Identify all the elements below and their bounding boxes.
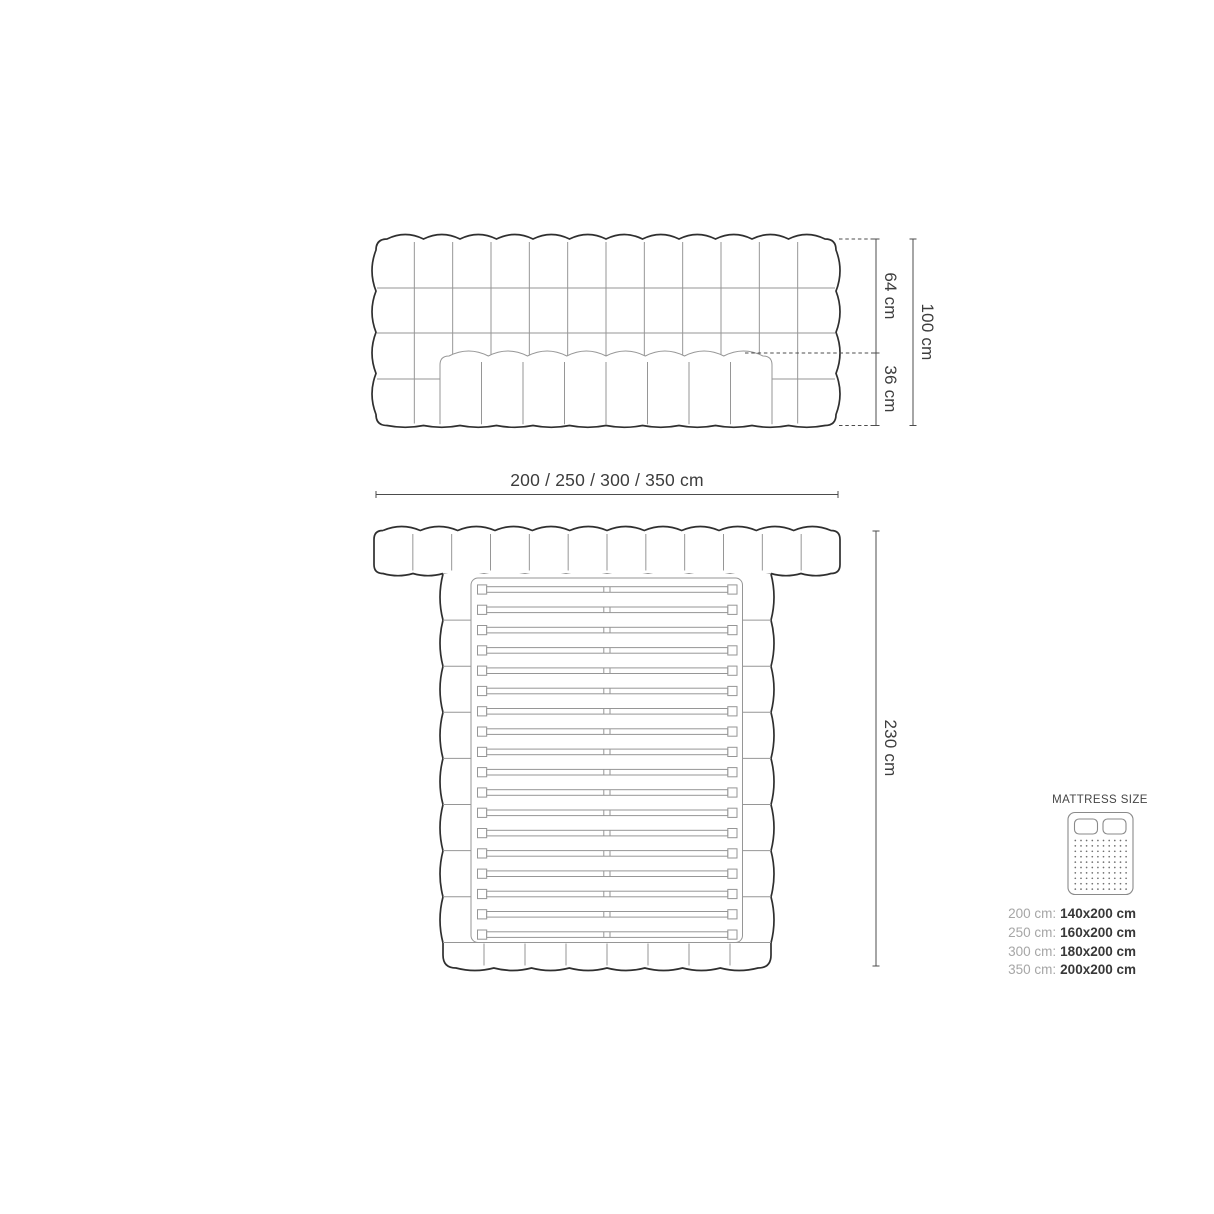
slat — [478, 626, 738, 635]
slat-left-cap — [478, 686, 487, 695]
mattress-dot — [1108, 877, 1110, 879]
mattress-size-row: 250 cm:160x200 cm — [995, 924, 1136, 943]
mattress-dot — [1103, 856, 1105, 858]
mattress-dot — [1080, 888, 1082, 890]
slat-bar — [487, 830, 728, 836]
slat-left-cap — [478, 808, 487, 817]
mattress-dot — [1091, 888, 1093, 890]
mattress-dot — [1120, 840, 1122, 842]
mattress-dot — [1103, 867, 1105, 869]
slat-right-cap — [728, 686, 737, 695]
mattress-dot — [1080, 883, 1082, 885]
slat — [478, 707, 738, 716]
mattress-dot — [1125, 888, 1127, 890]
slat-right-cap — [728, 747, 737, 756]
mattress-size-row: 200 cm:140x200 cm — [995, 905, 1136, 924]
size-option-label: 300 cm: — [1008, 944, 1056, 959]
mattress-dot — [1097, 888, 1099, 890]
mattress-dot — [1080, 877, 1082, 879]
mattress-dot — [1074, 861, 1076, 863]
mattress-dot — [1114, 845, 1116, 847]
mattress-dot — [1120, 877, 1122, 879]
mattress-dot — [1114, 888, 1116, 890]
mattress-dot — [1097, 867, 1099, 869]
mattress-dot — [1125, 850, 1127, 852]
mattress-dot — [1091, 877, 1093, 879]
slat-left-cap — [478, 626, 487, 635]
slat-right-cap — [728, 605, 737, 614]
mattress-dot — [1097, 877, 1099, 879]
slat — [478, 808, 738, 817]
mattress-dot — [1108, 840, 1110, 842]
mattress-dot — [1108, 845, 1110, 847]
mattress-dot — [1103, 883, 1105, 885]
slat-right-cap — [728, 869, 737, 878]
mattress-dot — [1120, 845, 1122, 847]
slat-left-cap — [478, 849, 487, 858]
slat — [478, 788, 738, 797]
slat — [478, 666, 738, 675]
slat-left-cap — [478, 727, 487, 736]
mattress-dot — [1108, 867, 1110, 869]
mattress-dot — [1086, 867, 1088, 869]
mattress-dot — [1091, 845, 1093, 847]
slat — [478, 849, 738, 858]
mattress-dot — [1103, 872, 1105, 874]
dim-label-100: 100 cm — [918, 304, 937, 361]
mattress-dot — [1080, 856, 1082, 858]
slat-bar — [487, 891, 728, 897]
slat-bar — [487, 871, 728, 877]
bed-dimension-diagram: 64 cm 36 cm 100 cm 200 / 250 / 300 / 350… — [0, 0, 1214, 1214]
dim-label-64: 64 cm — [881, 272, 900, 319]
slat-right-cap — [728, 727, 737, 736]
slat-bar — [487, 688, 728, 694]
slat-right-cap — [728, 666, 737, 675]
dim-label-230: 230 cm — [881, 720, 900, 777]
mattress-dot — [1125, 845, 1127, 847]
mattress-dot — [1086, 872, 1088, 874]
mattress-dot — [1103, 888, 1105, 890]
slat-right-cap — [728, 788, 737, 797]
slat-bar — [487, 627, 728, 633]
slat — [478, 768, 738, 777]
mattress-dot — [1125, 861, 1127, 863]
dim-label-36: 36 cm — [881, 365, 900, 412]
size-option-label: 250 cm: — [1008, 925, 1056, 940]
slat-left-cap — [478, 788, 487, 797]
dim-label-width: 200 / 250 / 300 / 350 cm — [510, 470, 704, 490]
dimension-line-100 — [910, 239, 917, 426]
slat-bar — [487, 709, 728, 715]
mattress-dot — [1086, 877, 1088, 879]
dimension-line-64-36 — [873, 239, 880, 426]
slat-left-cap — [478, 585, 487, 594]
pillow-left — [1075, 819, 1098, 834]
slat-left-cap — [478, 869, 487, 878]
dimension-line-230 — [873, 531, 880, 966]
mattress-dot — [1125, 883, 1127, 885]
mattress-dot — [1114, 850, 1116, 852]
mattress-dot — [1091, 850, 1093, 852]
slat-right-cap — [728, 707, 737, 716]
mattress-dot — [1091, 861, 1093, 863]
mattress-dot — [1074, 840, 1076, 842]
mattress-dot — [1074, 872, 1076, 874]
slat-right-cap — [728, 626, 737, 635]
mattress-dot — [1114, 840, 1116, 842]
mattress-dot — [1103, 877, 1105, 879]
slat-left-cap — [478, 666, 487, 675]
mattress-dot — [1074, 888, 1076, 890]
slat — [478, 869, 738, 878]
mattress-dot — [1080, 872, 1082, 874]
slat-right-cap — [728, 889, 737, 898]
slat-right-cap — [728, 646, 737, 655]
mattress-dot — [1120, 872, 1122, 874]
slat-left-cap — [478, 605, 487, 614]
mattress-dot — [1108, 861, 1110, 863]
mattress-dot — [1120, 861, 1122, 863]
mattress-dot — [1080, 845, 1082, 847]
dimension-line-width — [376, 491, 838, 498]
mattress-dot — [1080, 850, 1082, 852]
slat — [478, 747, 738, 756]
mattress-dot — [1086, 840, 1088, 842]
mattress-dot — [1114, 856, 1116, 858]
mattress-dot — [1091, 872, 1093, 874]
mattress-dot — [1103, 861, 1105, 863]
mattress-dot — [1074, 877, 1076, 879]
mattress-dot — [1125, 877, 1127, 879]
slat-right-cap — [728, 768, 737, 777]
size-option-label: 350 cm: — [1008, 962, 1056, 977]
slat-bar — [487, 912, 728, 918]
mattress-dot — [1097, 872, 1099, 874]
size-option-value: 180x200 cm — [1060, 944, 1136, 959]
mattress-dot — [1086, 883, 1088, 885]
mattress-dot — [1086, 850, 1088, 852]
slat-bar — [487, 668, 728, 674]
slat — [478, 686, 738, 695]
mattress-icon — [1068, 813, 1133, 895]
slat — [478, 930, 738, 939]
mattress-dot — [1120, 856, 1122, 858]
mattress-dot — [1080, 861, 1082, 863]
bed-dimensions-page: { "front_view": { "dim_upper": "64 cm", … — [0, 0, 1214, 1214]
mattress-size-row: 350 cm:200x200 cm — [995, 961, 1136, 980]
mattress-dot — [1086, 861, 1088, 863]
slat-bar — [487, 932, 728, 938]
mattress-dot — [1074, 856, 1076, 858]
mattress-dot — [1074, 845, 1076, 847]
size-option-value: 200x200 cm — [1060, 962, 1136, 977]
mattress-dot — [1097, 861, 1099, 863]
size-option-value: 140x200 cm — [1060, 906, 1136, 921]
mattress-dot — [1086, 888, 1088, 890]
slat — [478, 910, 738, 919]
mattress-dot — [1091, 867, 1093, 869]
mattress-dot — [1108, 856, 1110, 858]
slat — [478, 646, 738, 655]
slat-left-cap — [478, 646, 487, 655]
slat-bar — [487, 648, 728, 654]
slat-left-cap — [478, 707, 487, 716]
size-option-value: 160x200 cm — [1060, 925, 1136, 940]
slat-bar — [487, 790, 728, 796]
slat-bar — [487, 851, 728, 857]
mattress-dot — [1103, 850, 1105, 852]
mattress-dot — [1097, 856, 1099, 858]
slat — [478, 605, 738, 614]
slat-bar — [487, 587, 728, 593]
slat-right-cap — [728, 910, 737, 919]
mattress-dot — [1125, 872, 1127, 874]
mattress-front-overlay — [440, 351, 772, 424]
mattress-dot — [1091, 840, 1093, 842]
slat-left-cap — [478, 889, 487, 898]
mattress-dot — [1074, 883, 1076, 885]
slat-left-cap — [478, 747, 487, 756]
pillow-right — [1103, 819, 1126, 834]
mattress-dot — [1114, 872, 1116, 874]
mattress-dot — [1114, 877, 1116, 879]
mattress-dot — [1120, 850, 1122, 852]
mattress-dot — [1120, 867, 1122, 869]
slat-bar — [487, 607, 728, 613]
slat-right-cap — [728, 849, 737, 858]
mattress-dot — [1074, 867, 1076, 869]
mattress-dot — [1125, 840, 1127, 842]
slat-left-cap — [478, 829, 487, 838]
mattress-dot — [1097, 850, 1099, 852]
mattress-dot — [1120, 888, 1122, 890]
mattress-size-table: 200 cm:140x200 cm 250 cm:160x200 cm 300 … — [995, 905, 1136, 980]
headboard-top-view — [374, 527, 840, 576]
mattress-dot — [1114, 883, 1116, 885]
slat-bar — [487, 769, 728, 775]
slat-left-cap — [478, 930, 487, 939]
slat-left-cap — [478, 910, 487, 919]
size-option-label: 200 cm: — [1008, 906, 1056, 921]
mattress-dot — [1125, 867, 1127, 869]
mattress-dot — [1074, 850, 1076, 852]
mattress-dot — [1114, 867, 1116, 869]
mattress-size-row: 300 cm:180x200 cm — [995, 943, 1136, 962]
mattress-dot — [1120, 883, 1122, 885]
mattress-dot — [1091, 856, 1093, 858]
slat-right-cap — [728, 808, 737, 817]
mattress-dot — [1080, 867, 1082, 869]
mattress-size-title: MATTRESS SIZE — [1029, 794, 1171, 806]
slat — [478, 727, 738, 736]
mattress-dot — [1097, 883, 1099, 885]
mattress-dot — [1108, 888, 1110, 890]
slat-right-cap — [728, 829, 737, 838]
slat-bar — [487, 749, 728, 755]
mattress-dot — [1108, 883, 1110, 885]
slat-right-cap — [728, 585, 737, 594]
slat-left-cap — [478, 768, 487, 777]
slat-bar — [487, 729, 728, 735]
slat — [478, 889, 738, 898]
slat — [478, 585, 738, 594]
mattress-dot — [1080, 840, 1082, 842]
mattress-dot — [1091, 883, 1093, 885]
mattress-dot — [1097, 840, 1099, 842]
slat — [478, 829, 738, 838]
mattress-dot — [1125, 856, 1127, 858]
mattress-dot — [1108, 850, 1110, 852]
mattress-dot — [1114, 861, 1116, 863]
mattress-dot — [1103, 840, 1105, 842]
mattress-dot — [1086, 845, 1088, 847]
mattress-dot — [1103, 845, 1105, 847]
mattress-dot — [1086, 856, 1088, 858]
slat-right-cap — [728, 930, 737, 939]
mattress-dot — [1097, 845, 1099, 847]
mattress-dot — [1108, 872, 1110, 874]
slat-bar — [487, 810, 728, 816]
